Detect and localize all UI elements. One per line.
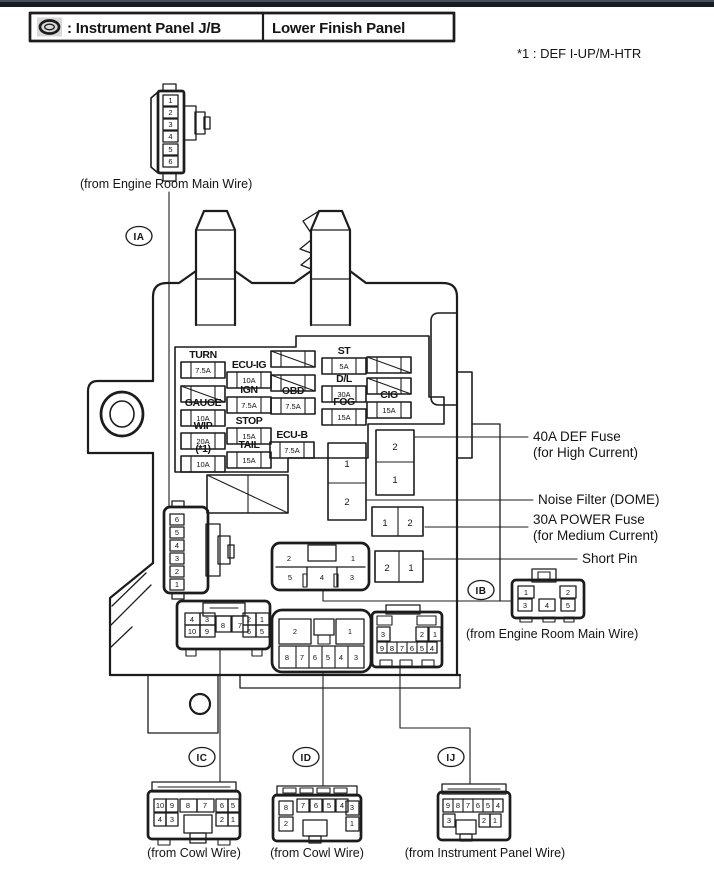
svg-text:1: 1 (493, 816, 497, 825)
svg-text:8: 8 (186, 801, 190, 810)
svg-text:6: 6 (314, 801, 318, 810)
svg-text:6: 6 (220, 801, 224, 810)
svg-text:5: 5 (175, 528, 179, 537)
svg-text:4: 4 (430, 644, 434, 653)
svg-text:5: 5 (327, 801, 331, 810)
svg-text:15A: 15A (337, 413, 350, 422)
svg-text:2: 2 (287, 554, 291, 563)
svg-text:2: 2 (420, 630, 424, 639)
svg-text:5: 5 (168, 145, 172, 154)
svg-text:OBD: OBD (282, 385, 305, 397)
svg-text:3: 3 (447, 816, 451, 825)
svg-text:5: 5 (420, 644, 424, 653)
svg-text:5: 5 (288, 573, 292, 582)
svg-text:1: 1 (175, 580, 179, 589)
svg-text:STOP: STOP (236, 415, 263, 427)
svg-text:6: 6 (247, 627, 251, 636)
svg-text:4: 4 (339, 653, 343, 662)
svg-text:6: 6 (313, 653, 317, 662)
svg-text:10A: 10A (196, 460, 209, 469)
svg-text:WIP: WIP (194, 420, 213, 432)
svg-text:2: 2 (168, 108, 172, 117)
svg-text:1: 1 (433, 630, 437, 639)
svg-text:15A: 15A (242, 456, 255, 465)
svg-text:1: 1 (260, 615, 264, 624)
svg-text:TAIL: TAIL (239, 439, 261, 451)
svg-text:3: 3 (354, 653, 358, 662)
svg-text:6: 6 (476, 801, 480, 810)
svg-text:Short Pin: Short Pin (582, 551, 638, 566)
wire-label-id: (from Cowl Wire) (270, 846, 364, 860)
svg-text:1: 1 (344, 459, 349, 470)
svg-text:7: 7 (300, 653, 304, 662)
svg-text:IGN: IGN (240, 384, 257, 396)
svg-text:4: 4 (545, 601, 549, 610)
svg-text:IB: IB (476, 586, 487, 597)
svg-text:3: 3 (350, 573, 354, 582)
svg-text:IC: IC (197, 753, 208, 764)
svg-text:8: 8 (285, 653, 289, 662)
header-right-label: Lower Finish Panel (272, 20, 405, 37)
wire-label-ic: (from Cowl Wire) (147, 846, 241, 860)
svg-text:2: 2 (175, 567, 179, 576)
svg-text:ECU-B: ECU-B (276, 429, 308, 441)
svg-text:3: 3 (168, 120, 172, 129)
svg-text:4: 4 (190, 615, 194, 624)
svg-text:5: 5 (260, 627, 264, 636)
svg-text:7.5A: 7.5A (195, 366, 210, 375)
top-window-bar (0, 0, 714, 7)
svg-text:FOG: FOG (333, 396, 355, 408)
svg-text:2: 2 (284, 819, 288, 828)
svg-text:ECU-IG: ECU-IG (232, 359, 267, 371)
svg-text:2: 2 (392, 442, 397, 453)
svg-text:2: 2 (220, 815, 224, 824)
wire-label-ib: (from Engine Room Main Wire) (466, 627, 638, 641)
svg-text:40A DEF Fuse: 40A DEF Fuse (533, 429, 621, 444)
svg-text:8: 8 (284, 803, 288, 812)
svg-text:2: 2 (566, 588, 570, 597)
svg-text:1: 1 (231, 815, 235, 824)
svg-text:(for High Current): (for High Current) (533, 445, 638, 460)
svg-text:5: 5 (486, 801, 490, 810)
wire-label-ia: (from Engine Room Main Wire) (80, 177, 252, 191)
svg-text:15A: 15A (382, 406, 395, 415)
svg-text:7: 7 (466, 801, 470, 810)
svg-text:1: 1 (168, 96, 172, 105)
svg-text:D/L: D/L (336, 373, 353, 385)
svg-text:3: 3 (170, 815, 174, 824)
svg-text:GAUGE: GAUGE (185, 397, 222, 409)
svg-text:(*1): (*1) (195, 443, 210, 455)
svg-text:6: 6 (410, 644, 414, 653)
svg-text:4: 4 (340, 801, 344, 810)
svg-text:Noise Filter (DOME): Noise Filter (DOME) (538, 492, 660, 507)
svg-text:7: 7 (301, 801, 305, 810)
svg-text:1: 1 (350, 819, 354, 828)
header-left-label: : Instrument Panel J/B (67, 20, 221, 37)
svg-text:2: 2 (344, 497, 349, 508)
svg-text:10: 10 (188, 627, 196, 636)
svg-text:5: 5 (566, 601, 570, 610)
svg-text:8: 8 (390, 644, 394, 653)
svg-text:2: 2 (482, 816, 486, 825)
fuse-box-diagram-page: : Instrument Panel J/B Lower Finish Pane… (0, 0, 714, 880)
svg-text:3: 3 (523, 601, 527, 610)
svg-text:ID: ID (301, 753, 312, 764)
wire-label-ij: (from Instrument Panel Wire) (405, 846, 565, 860)
svg-text:10: 10 (156, 801, 164, 810)
svg-text:7.5A: 7.5A (241, 401, 256, 410)
svg-text:1: 1 (408, 563, 413, 574)
svg-text:(for Medium Current): (for Medium Current) (533, 528, 658, 543)
svg-text:4: 4 (158, 815, 162, 824)
svg-text:9: 9 (170, 801, 174, 810)
svg-text:3: 3 (381, 630, 385, 639)
svg-text:7.5A: 7.5A (284, 446, 299, 455)
svg-text:5: 5 (326, 653, 330, 662)
svg-text:7.5A: 7.5A (285, 402, 300, 411)
svg-text:6: 6 (168, 157, 172, 166)
svg-text:4: 4 (175, 541, 179, 550)
svg-text:CIG: CIG (380, 389, 398, 401)
svg-text:4: 4 (496, 801, 500, 810)
svg-text:30A POWER Fuse: 30A POWER Fuse (533, 512, 645, 527)
svg-text:4: 4 (320, 573, 324, 582)
svg-text:2: 2 (293, 627, 297, 636)
svg-text:5A: 5A (339, 362, 348, 371)
svg-text:7: 7 (400, 644, 404, 653)
svg-text:9: 9 (380, 644, 384, 653)
svg-text:ST: ST (338, 345, 352, 357)
svg-text:TURN: TURN (189, 349, 217, 361)
svg-text:IA: IA (134, 232, 145, 243)
svg-text:4: 4 (168, 132, 172, 141)
svg-text:1: 1 (348, 627, 352, 636)
svg-text:3: 3 (205, 615, 209, 624)
svg-text:7: 7 (238, 621, 242, 630)
svg-text:1: 1 (524, 588, 528, 597)
svg-text:8: 8 (221, 621, 225, 630)
svg-text:9: 9 (205, 627, 209, 636)
svg-text:1: 1 (392, 475, 397, 486)
svg-text:IJ: IJ (446, 753, 455, 764)
svg-text:6: 6 (175, 515, 179, 524)
svg-text:5: 5 (231, 801, 235, 810)
footnote: *1 : DEF I-UP/M-HTR (517, 46, 641, 61)
svg-text:2: 2 (384, 563, 389, 574)
svg-text:2: 2 (247, 615, 251, 624)
svg-text:8: 8 (456, 801, 460, 810)
svg-text:2: 2 (407, 518, 412, 529)
svg-text:7: 7 (203, 801, 207, 810)
svg-text:3: 3 (175, 554, 179, 563)
svg-text:1: 1 (382, 518, 387, 529)
svg-text:9: 9 (446, 801, 450, 810)
svg-text:1: 1 (351, 554, 355, 563)
diagram-canvas: : Instrument Panel J/B Lower Finish Pane… (0, 0, 714, 880)
svg-text:3: 3 (350, 803, 354, 812)
